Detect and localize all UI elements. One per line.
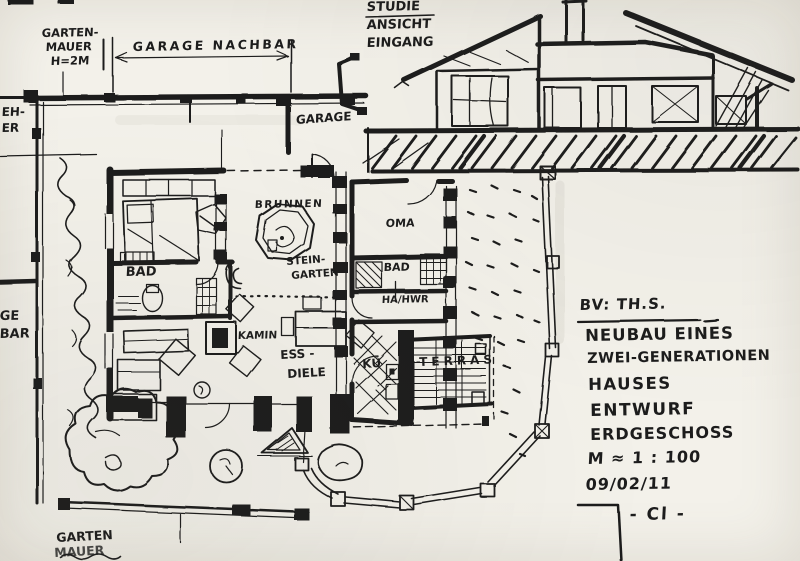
label-garage: GARAGE [296, 110, 352, 126]
lounger [226, 262, 241, 288]
glazed-gallery-band [330, 172, 350, 434]
title-line-1: NEUBAU EINES [585, 325, 734, 344]
label-bad-left: BAD [125, 265, 156, 279]
label-kamin: KAMIN [237, 330, 277, 341]
courtyard-brunnen [226, 204, 336, 298]
label-diele: DIELE [287, 366, 326, 380]
label-garage-nachbar: GARAGE NACHBAR [132, 38, 299, 53]
label-terrasse: TERRAS [419, 353, 496, 368]
label-left-edge-top-1: EH- [1, 106, 25, 118]
floor-plan-sketch-drawing [0, 0, 800, 561]
title-line-5: ERDGESCHOSS [590, 424, 734, 443]
bedroom-furniture [123, 180, 227, 263]
label-garten-mauer-top-1: GARTEN- [41, 27, 98, 40]
title-line-2: ZWEI-GENERATIONEN [587, 349, 770, 367]
label-left-edge-mid-2: BAR [0, 327, 30, 341]
title-signature: - Cl - [629, 506, 686, 524]
west-garden-wall-and-hedge [0, 100, 98, 503]
gravel-garden-stipple [466, 186, 539, 456]
label-steingarten-1: STEIN- [286, 254, 326, 267]
label-left-edge-top-2: ER [1, 122, 19, 134]
label-bad-right: BAD [383, 262, 410, 273]
label-studie-3: EINGANG [366, 36, 434, 50]
label-brunnen: BRUNNEN [254, 199, 323, 211]
label-oma: OMA [385, 217, 414, 229]
label-garten-mauer-top-3: H=2M [50, 55, 89, 67]
label-studie-1: STUDIE [366, 0, 420, 14]
title-line-3: HAUSES [588, 376, 672, 394]
label-garten-mauer-top-2: MAUER [45, 41, 92, 53]
label-ess: ESS - [280, 347, 315, 361]
scanned-sketch-page: GARTEN- MAUER H=2M GARAGE NACHBAR STUDIE… [0, 0, 800, 561]
label-ha-hwr: HA/HWR [381, 295, 428, 306]
title-project: BV: TH.S. [579, 296, 667, 313]
label-left-edge-mid-1: GE [0, 310, 20, 323]
label-garten-mauer-bottom-1: GARTEN [56, 529, 113, 544]
title-scale: M ≈ 1 : 100 [587, 449, 701, 467]
title-line-4: ENTWURF [590, 401, 695, 420]
label-studie-2: ANSICHT [366, 18, 431, 32]
title-date: 09/02/11 [585, 475, 672, 493]
label-kueche: KÜ [362, 357, 381, 370]
label-garten-mauer-bottom-2: MAUER [54, 544, 105, 559]
